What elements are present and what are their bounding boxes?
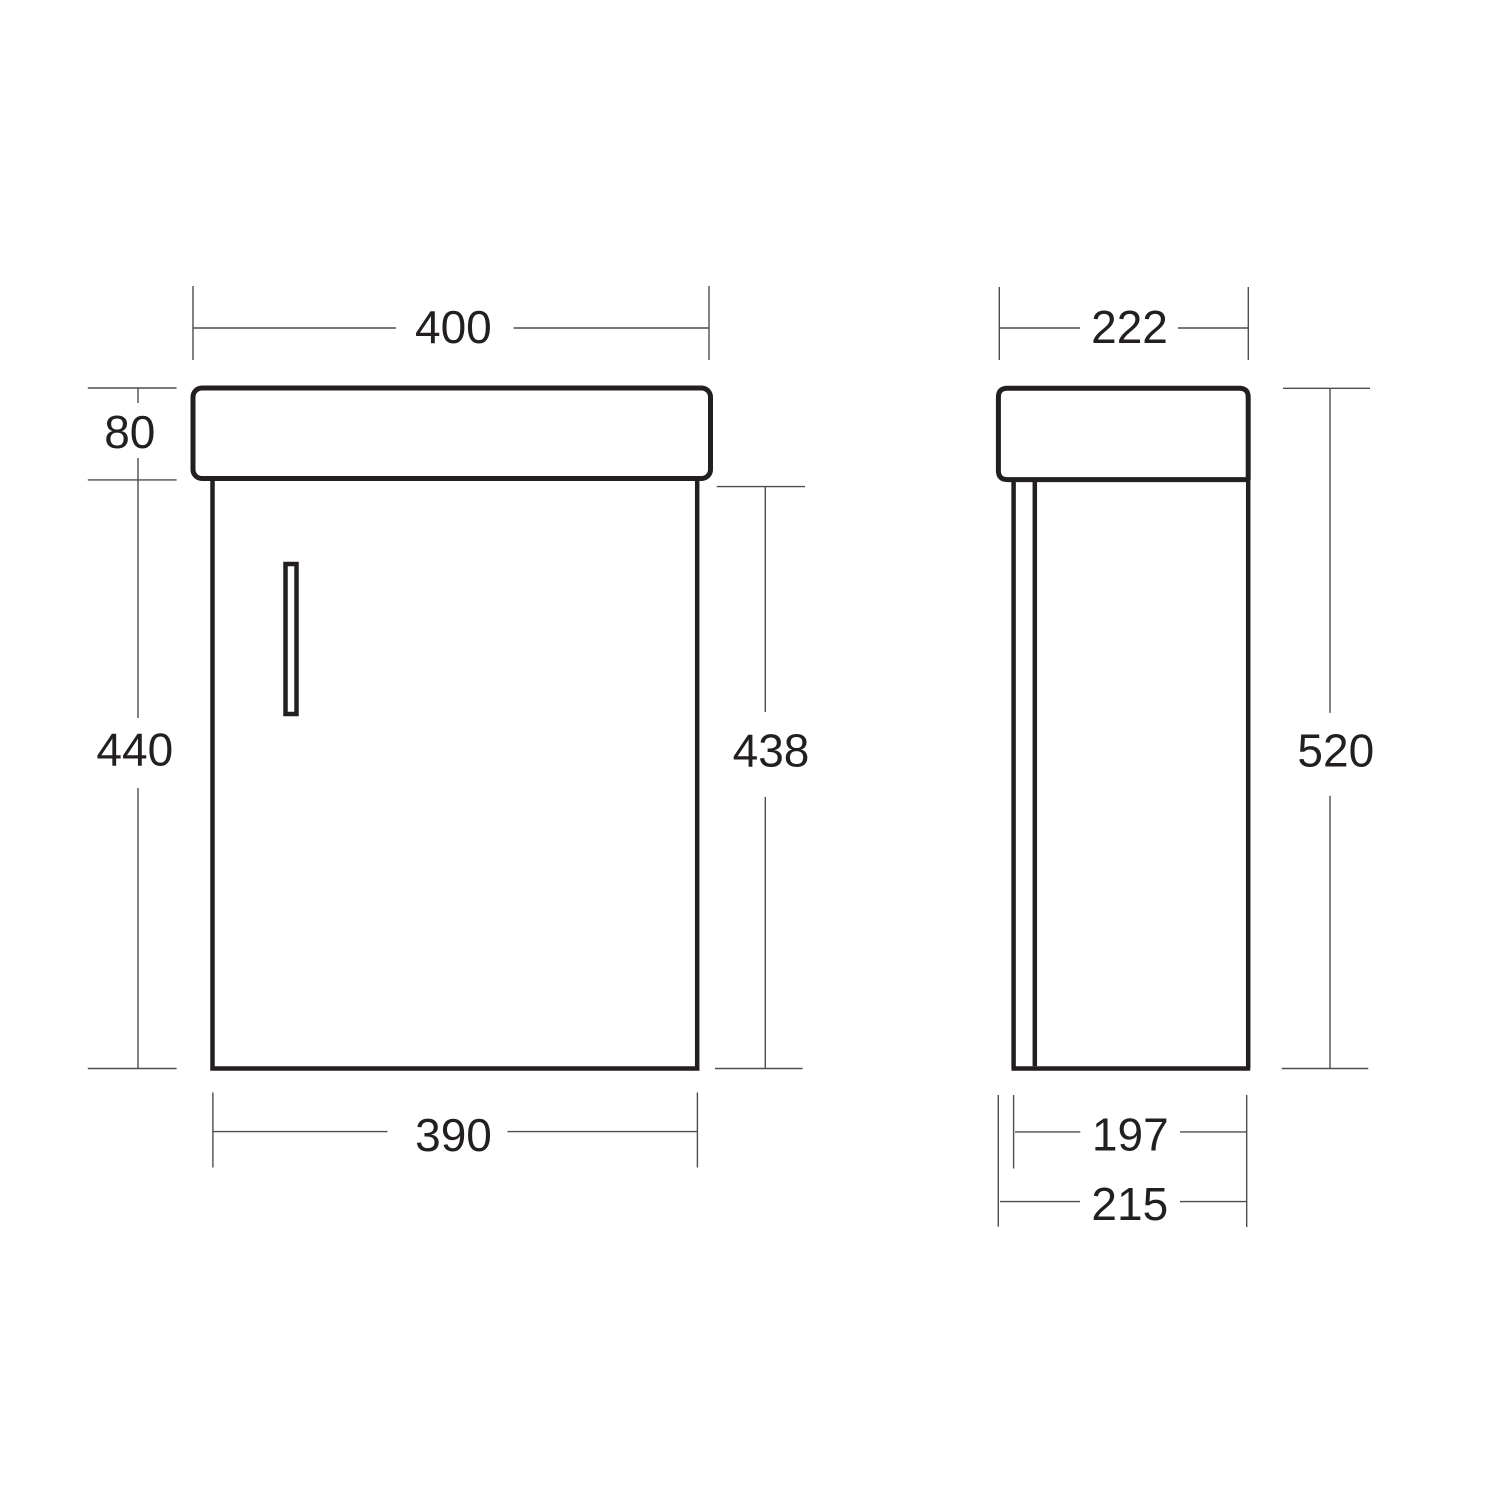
svg-text:440: 440 [96, 724, 173, 776]
svg-text:438: 438 [733, 725, 810, 777]
svg-text:390: 390 [415, 1109, 492, 1161]
svg-text:520: 520 [1297, 725, 1374, 777]
svg-text:197: 197 [1092, 1109, 1169, 1161]
svg-text:215: 215 [1091, 1178, 1168, 1230]
svg-text:80: 80 [104, 406, 155, 458]
svg-text:400: 400 [415, 301, 492, 353]
svg-text:222: 222 [1091, 301, 1168, 353]
